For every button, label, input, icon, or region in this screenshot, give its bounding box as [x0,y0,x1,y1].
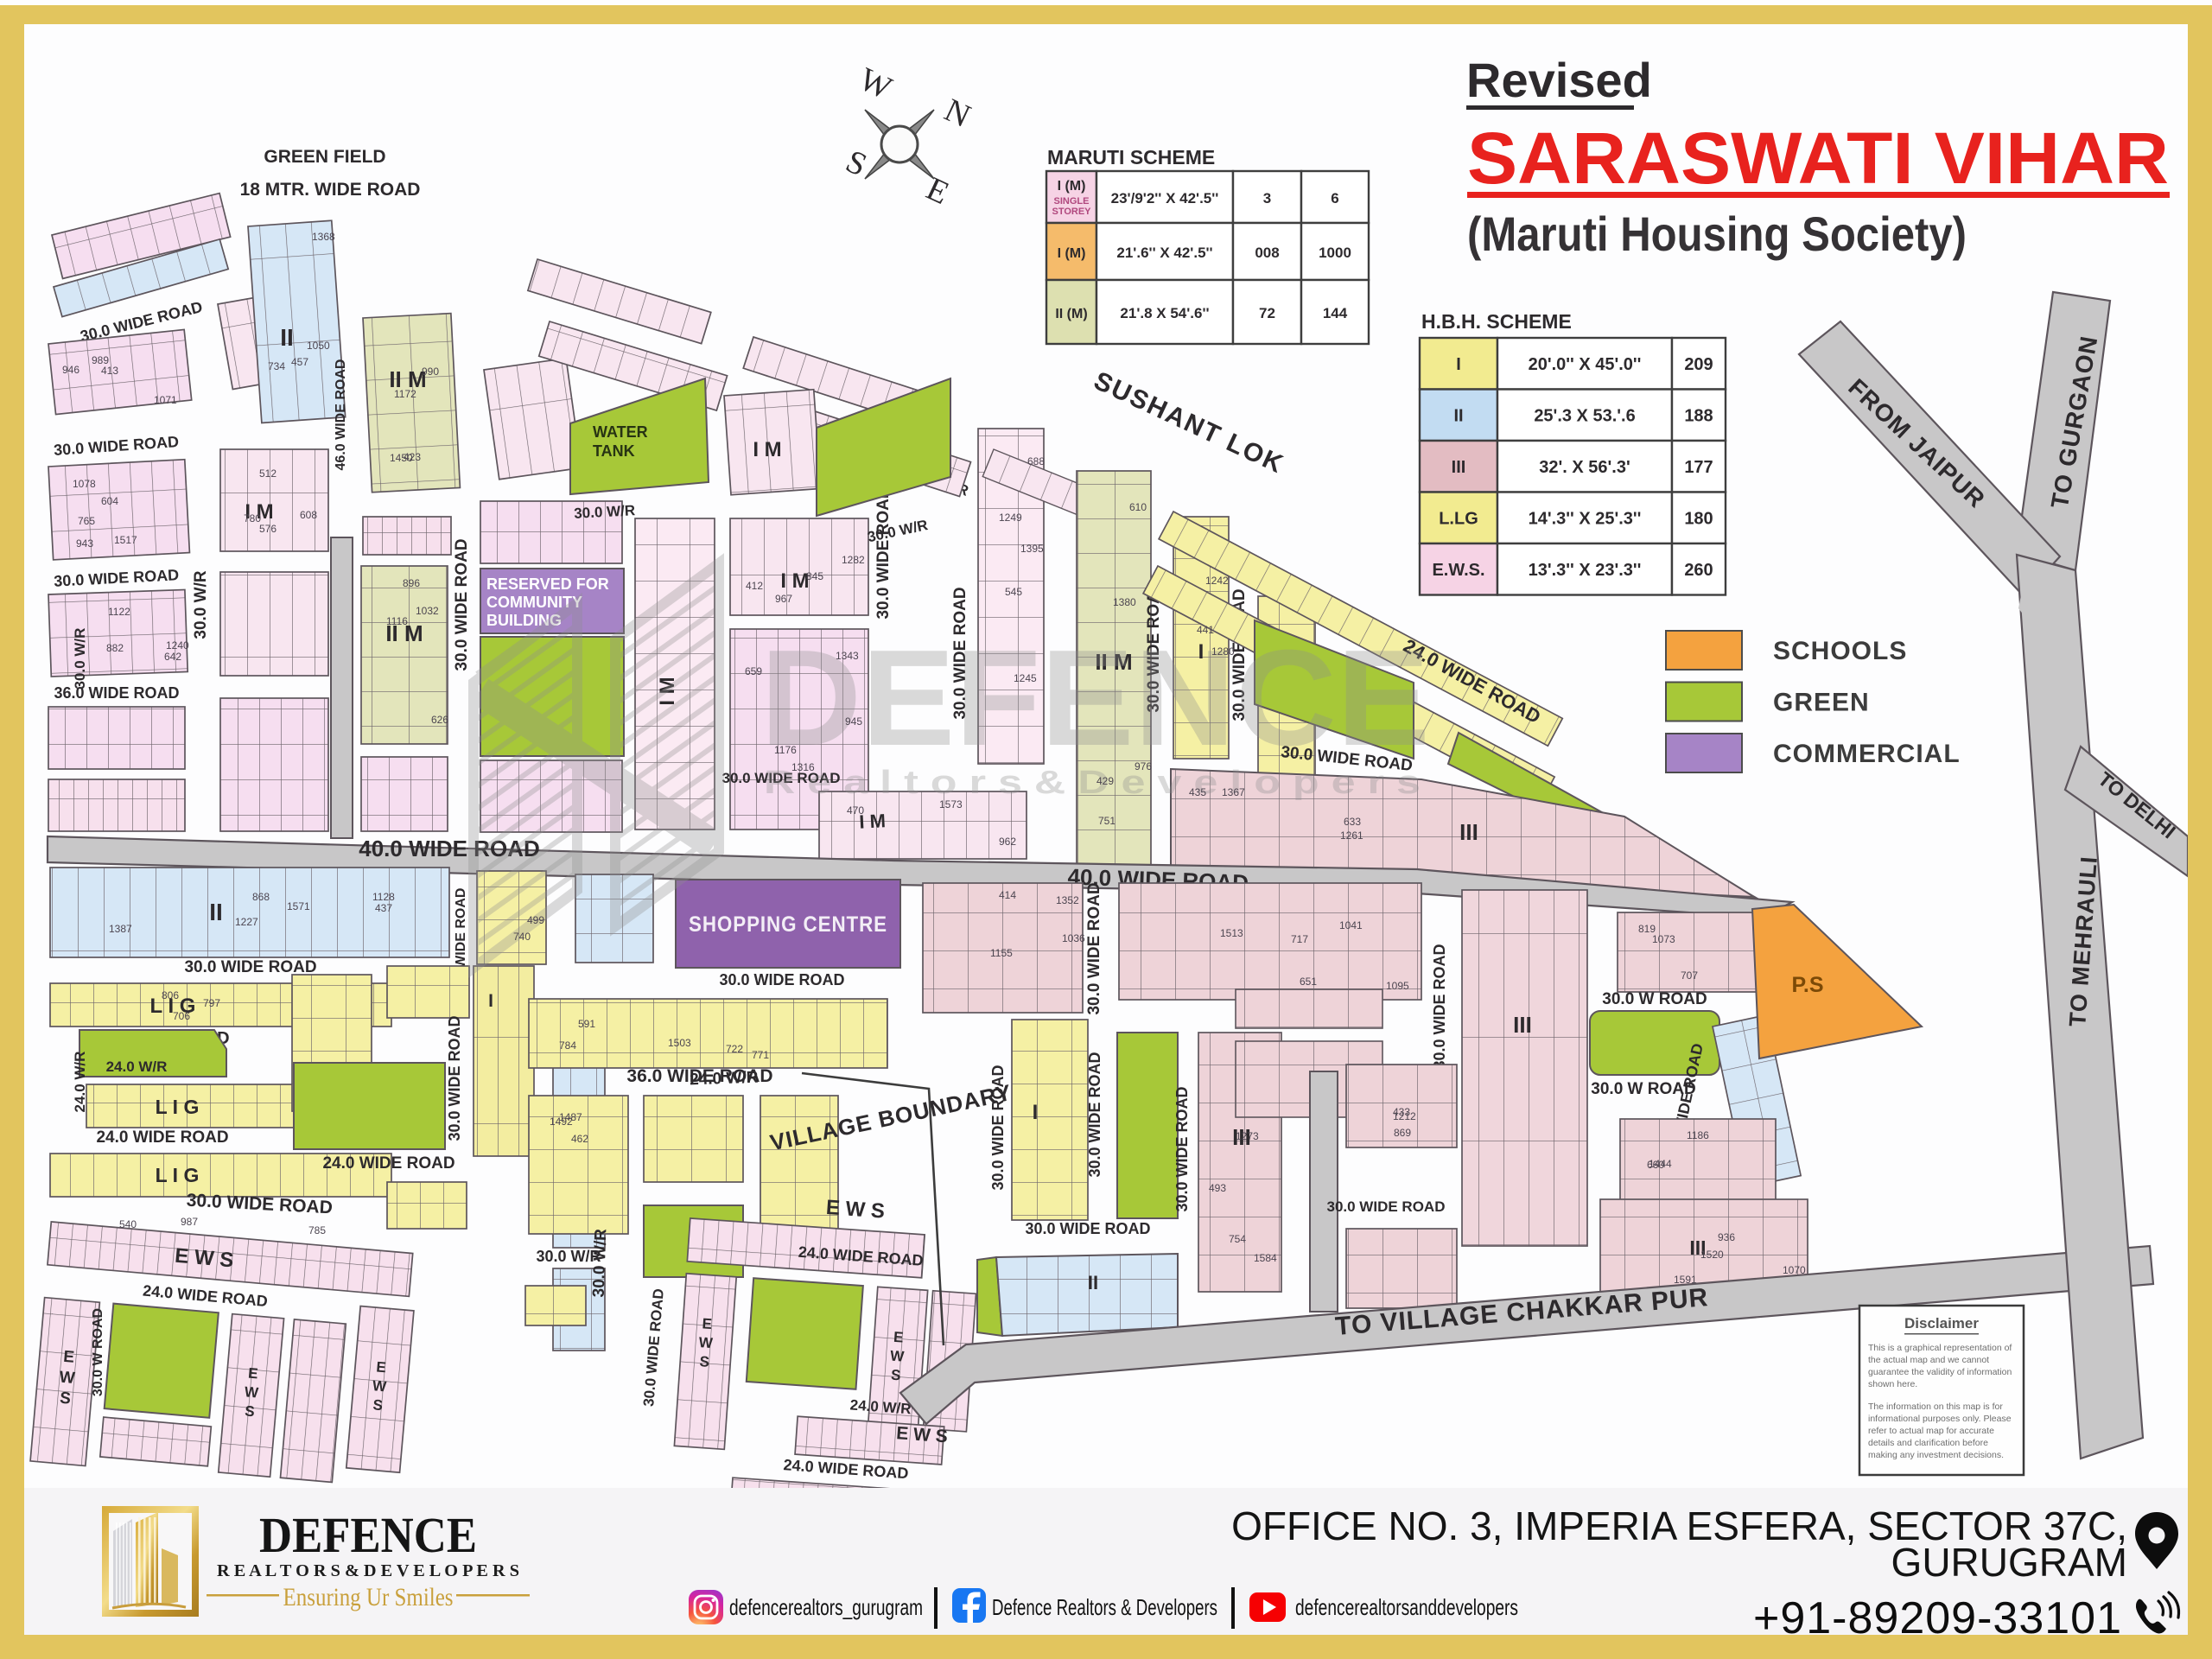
svg-text:209: 209 [1684,355,1713,374]
svg-text:E: E [702,1315,713,1332]
svg-text:III: III [1513,1012,1532,1038]
svg-text:R E A L T O R S & D E V E L: R E A L T O R S & D E V E L O P E R S [217,1561,519,1580]
svg-text:I M: I M [780,569,809,593]
svg-text:493: 493 [1209,1182,1226,1194]
svg-text:990: 990 [422,365,439,378]
svg-text:734: 734 [268,360,285,372]
svg-text:I: I [488,991,493,1011]
svg-text:1036: 1036 [1062,932,1085,944]
svg-text:1395: 1395 [1020,543,1044,555]
svg-text:S: S [59,1389,71,1408]
svg-text:6: 6 [1331,190,1338,207]
svg-text:COMMERCIAL: COMMERCIAL [1773,740,1961,768]
svg-text:1128: 1128 [372,891,395,903]
svg-text:W: W [244,1383,260,1401]
svg-text:1073: 1073 [1652,933,1675,945]
svg-text:30.0 WIDE ROAD: 30.0 WIDE ROAD [989,1065,1007,1190]
svg-text:25'.3 X 53.'.6: 25'.3 X 53.'.6 [1534,407,1635,426]
svg-text:W: W [698,1334,714,1351]
svg-text:Revised: Revised [1466,53,1652,107]
svg-text:1584: 1584 [1254,1252,1277,1264]
svg-text:717: 717 [1291,933,1308,945]
svg-text:30.0 W/R: 30.0 W/R [192,570,210,639]
svg-text:SARASWATI VIHAR: SARASWATI VIHAR [1467,118,2169,199]
svg-text:21'.8 X 54'.6'': 21'.8 X 54'.6'' [1120,305,1209,321]
svg-text:806: 806 [162,989,179,1001]
svg-text:The information on this map: The information on this map is for [1868,1402,2003,1412]
svg-text:informational purposes only. P: informational purposes only. Please [1868,1414,2012,1424]
svg-text:3: 3 [1263,190,1271,207]
svg-text:GURUGRAM: GURUGRAM [1891,1540,2127,1585]
svg-text:1050: 1050 [307,340,330,352]
svg-text:869: 869 [1394,1127,1411,1139]
svg-text:R e a l t o r s & D e v e: R e a l t o r s & D e v e l o p e r s [764,765,1421,801]
svg-text:1571: 1571 [287,900,310,912]
svg-text:1513: 1513 [1220,927,1243,939]
svg-text:545: 545 [1005,586,1022,598]
svg-text:refer to actual map for a: refer to actual map for accurate [1868,1426,1994,1436]
svg-text:008: 008 [1255,245,1279,261]
svg-text:188: 188 [1684,407,1713,426]
svg-text:1368: 1368 [312,231,335,243]
svg-text:L.LG: L.LG [1439,510,1478,529]
svg-text:660: 660 [1647,1159,1664,1171]
svg-text:1352: 1352 [1056,894,1079,906]
svg-text:Disclaimer: Disclaimer [1904,1315,1979,1332]
svg-text:1116: 1116 [386,615,408,627]
svg-text:765: 765 [78,515,95,527]
svg-text:576: 576 [259,523,276,535]
svg-text:1186: 1186 [1687,1129,1709,1141]
svg-text:30.0 WIDE ROAD: 30.0 WIDE ROAD [1085,882,1103,1014]
svg-text:the actual map and we can: the actual map and we cannot [1868,1355,1989,1365]
svg-text:I: I [1456,355,1461,374]
svg-text:30.0 W ROAD: 30.0 W ROAD [1602,990,1707,1008]
svg-text:412: 412 [746,580,763,592]
svg-text:1242: 1242 [1205,575,1229,587]
svg-text:46.0 WIDE ROAD: 46.0 WIDE ROAD [334,359,348,471]
svg-text:30.0 W/R: 30.0 W/R [590,1229,611,1298]
svg-text:E: E [62,1348,74,1367]
svg-text:30.0 WIDE ROAD: 30.0 WIDE ROAD [874,486,893,619]
svg-text:1591: 1591 [1674,1274,1697,1286]
svg-text:1573: 1573 [939,798,963,810]
svg-text:30.0 WIDE ROAD: 30.0 WIDE ROAD [1025,1220,1150,1237]
svg-text:604: 604 [101,495,118,507]
svg-text:896: 896 [403,577,420,589]
svg-text:845: 845 [806,570,823,582]
svg-text:30.0 WIDE ROAD: 30.0 WIDE ROAD [184,958,316,976]
svg-text:18 MTR. WIDE ROAD: 18 MTR. WIDE ROAD [240,180,421,200]
svg-text:I: I [1033,1101,1039,1124]
svg-text:DEFENCE: DEFENCE [259,1507,477,1563]
svg-text:E W S: E W S [895,1423,948,1446]
svg-text:S: S [372,1396,384,1414]
svg-text:L I G: L I G [156,1096,200,1118]
svg-text:413: 413 [101,365,118,377]
svg-text:shown here.: shown here. [1868,1379,1917,1389]
svg-text:784: 784 [559,1039,576,1052]
svg-text:I (M): I (M) [1058,246,1086,261]
svg-text:E W S: E W S [825,1196,886,1224]
svg-text:III: III [1459,819,1478,845]
svg-text:30.0 WIDE ROAD: 30.0 WIDE ROAD [1086,1052,1103,1177]
svg-text:435: 435 [1189,786,1206,798]
svg-text:1280: 1280 [1211,645,1235,658]
svg-text:423: 423 [404,451,421,463]
svg-text:21'.6'' X 42'.5'': 21'.6'' X 42'.5'' [1116,245,1212,261]
svg-text:260: 260 [1684,561,1713,580]
svg-text:14'.3'' X 25'.3'': 14'.3'' X 25'.3'' [1529,510,1642,529]
svg-text:MARUTI SCHEME: MARUTI SCHEME [1047,146,1215,168]
svg-text:TANK: TANK [593,442,635,460]
svg-text:1212: 1212 [1393,1110,1416,1122]
svg-text:32'. X 56'.3': 32'. X 56'.3' [1539,458,1630,477]
svg-text:976: 976 [1135,760,1152,772]
svg-text:177: 177 [1684,458,1713,477]
svg-text:II: II [1453,407,1463,426]
svg-text:W: W [59,1369,76,1388]
svg-text:STOREY: STOREY [1052,207,1091,217]
svg-text:707: 707 [1681,969,1698,982]
svg-text:1380: 1380 [1113,596,1136,608]
svg-text:882: 882 [106,642,124,654]
svg-text:making any investment decision: making any investment decisions. [1868,1450,2004,1460]
svg-text:1316: 1316 [791,761,815,773]
svg-text:1520: 1520 [1700,1249,1724,1261]
svg-text:E: E [376,1358,387,1376]
svg-text:P.S: P.S [1791,973,1823,997]
svg-text:SINGLE: SINGLE [1054,196,1090,207]
svg-text:967: 967 [775,593,792,605]
svg-text:462: 462 [571,1133,588,1145]
svg-text:RESERVED FOR: RESERVED FOR [486,575,609,593]
svg-text:30.0 W ROAD: 30.0 W ROAD [91,1308,105,1396]
svg-text:1343: 1343 [836,650,859,662]
svg-text:751: 751 [1098,815,1116,827]
svg-text:414: 414 [999,889,1016,901]
svg-text:989: 989 [92,354,109,366]
svg-text:W: W [890,1348,906,1365]
svg-text:1172: 1172 [394,388,416,400]
svg-text:I M: I M [753,438,781,461]
svg-text:30.0 WIDE ROAD: 30.0 WIDE ROAD [1327,1198,1446,1215]
svg-text:785: 785 [308,1224,326,1236]
svg-text:23'/9'2'' X 42'.5'': 23'/9'2'' X 42'.5'' [1111,190,1219,207]
svg-text:1032: 1032 [416,605,439,617]
svg-text:987: 987 [181,1216,198,1228]
svg-text:II: II [280,324,294,351]
svg-text:1227: 1227 [235,916,258,928]
svg-text:E.W.S.: E.W.S. [1432,561,1484,580]
svg-text:30.0 WIDE ROAD: 30.0 WIDE ROAD [1173,1086,1191,1211]
svg-text:659: 659 [745,665,762,677]
svg-text:144: 144 [1323,305,1348,321]
svg-text:540: 540 [119,1218,137,1230]
svg-text:W: W [372,1377,388,1395]
svg-text:guarantee the validity of info: guarantee the validity of information [1868,1367,2012,1377]
svg-text:II: II [1088,1272,1098,1294]
svg-text:706: 706 [173,1010,190,1022]
svg-text:754: 754 [1229,1233,1246,1245]
svg-text:72: 72 [1259,305,1275,321]
svg-text:441: 441 [1197,624,1214,636]
svg-text:1282: 1282 [842,554,865,566]
svg-text:945: 945 [845,715,862,728]
svg-text:1176: 1176 [774,744,797,756]
svg-text:1249: 1249 [999,512,1022,524]
svg-text:499: 499 [527,914,544,926]
svg-text:Ensuring Ur Smiles: Ensuring Ur Smiles [283,1583,454,1611]
svg-text:1078: 1078 [73,478,96,490]
svg-text:642: 642 [164,651,181,663]
svg-text:(Maruti Housing Society): (Maruti Housing Society) [1467,207,1967,261]
svg-text:1155: 1155 [990,947,1013,959]
svg-text:591: 591 [578,1018,595,1030]
svg-text:1000: 1000 [1319,245,1351,261]
svg-text:457: 457 [291,356,308,368]
svg-text:797: 797 [203,997,220,1009]
svg-text:I (M): I (M) [1058,179,1086,194]
svg-text:30.0 WIDE ROAD: 30.0 WIDE ROAD [719,971,844,988]
svg-text:1261: 1261 [1340,829,1363,842]
svg-text:30.0 WIDE ROAD: 30.0 WIDE ROAD [1431,944,1448,1069]
svg-text:II: II [209,899,223,925]
svg-text:943: 943 [76,537,93,550]
svg-text:S: S [699,1353,710,1370]
svg-text:610: 610 [1129,501,1147,513]
svg-text:771: 771 [752,1049,769,1061]
svg-text:13'.3'' X 23'.3'': 13'.3'' X 23'.3'' [1529,561,1642,580]
svg-text:1122: 1122 [108,606,130,618]
svg-text:30.0 WIDE ROAD: 30.0 WIDE ROAD [446,1015,463,1141]
svg-text:946: 946 [62,364,79,376]
svg-text:722: 722 [726,1043,743,1055]
svg-text:This is a graphical representa: This is a graphical representation of [1868,1343,2012,1353]
svg-text:962: 962 [999,836,1016,848]
svg-text:30.0 W/R: 30.0 W/R [72,628,88,690]
svg-text:SCHOOLS: SCHOOLS [1773,637,1907,665]
svg-text:24.0 WIDE ROAD: 24.0 WIDE ROAD [96,1128,228,1147]
svg-text:1503: 1503 [668,1037,691,1049]
svg-text:1245: 1245 [1014,672,1037,684]
svg-text:740: 740 [513,931,531,943]
svg-text:1367: 1367 [1222,786,1245,798]
svg-text:L I G: L I G [156,1164,200,1186]
svg-text:437: 437 [375,902,392,914]
svg-text:GREEN FIELD: GREEN FIELD [264,147,385,167]
svg-text:III: III [1452,458,1466,477]
svg-text:defencerealtors_gurugram: defencerealtors_gurugram [729,1594,923,1620]
svg-text:1071: 1071 [154,394,177,406]
svg-text:1387: 1387 [109,923,132,935]
svg-text:868: 868 [252,891,270,903]
svg-text:II (M): II (M) [1055,307,1087,321]
svg-text:180: 180 [1684,510,1713,529]
svg-text:E: E [893,1329,904,1346]
svg-text:1041: 1041 [1339,919,1363,931]
svg-text:DEFENCE: DEFENCE [760,622,1430,774]
svg-text:30.0 WIDE ROAD: 30.0 WIDE ROAD [453,538,471,671]
svg-text:S: S [245,1402,256,1420]
svg-text:633: 633 [1344,816,1361,828]
svg-text:30.0 W/R: 30.0 W/R [574,502,636,522]
svg-text:defencerealtorsanddevelopers: defencerealtorsanddevelopers [1295,1594,1518,1620]
svg-text:GREEN: GREEN [1773,689,1870,717]
svg-text:H.B.H. SCHEME: H.B.H. SCHEME [1421,310,1572,333]
svg-text:E: E [247,1365,258,1382]
svg-text:470: 470 [847,804,864,817]
svg-text:1487: 1487 [559,1111,582,1123]
svg-text:Defence Realtors & Developers: Defence Realtors & Developers [992,1594,1217,1620]
svg-text:1070: 1070 [1783,1264,1806,1276]
svg-text:24.0 W/R: 24.0 W/R [106,1058,168,1075]
svg-text:512: 512 [259,467,276,480]
svg-text:SHOPPING CENTRE: SHOPPING CENTRE [689,912,887,937]
svg-text:WATER: WATER [593,423,648,441]
svg-text:24.0 WIDE ROAD: 24.0 WIDE ROAD [322,1154,454,1173]
svg-text:626: 626 [431,714,448,726]
svg-text:1517: 1517 [114,534,137,546]
svg-text:936: 936 [1718,1231,1735,1243]
svg-text:details and clarification: details and clarification before [1868,1438,1988,1448]
svg-text:24.0 W/R: 24.0 W/R [72,1052,88,1113]
svg-text:688: 688 [1027,455,1045,467]
svg-text:651: 651 [1300,976,1317,988]
svg-text:1095: 1095 [1386,980,1409,992]
svg-text:1273: 1273 [1236,1130,1259,1142]
svg-text:S: S [890,1367,901,1384]
svg-text:24.0 W/R: 24.0 W/R [690,1069,759,1090]
svg-text:429: 429 [1096,775,1114,787]
svg-text:1240: 1240 [166,639,189,652]
svg-text:608: 608 [300,509,317,521]
svg-text:20'.0'' X 45'.0'': 20'.0'' X 45'.0'' [1529,355,1642,374]
